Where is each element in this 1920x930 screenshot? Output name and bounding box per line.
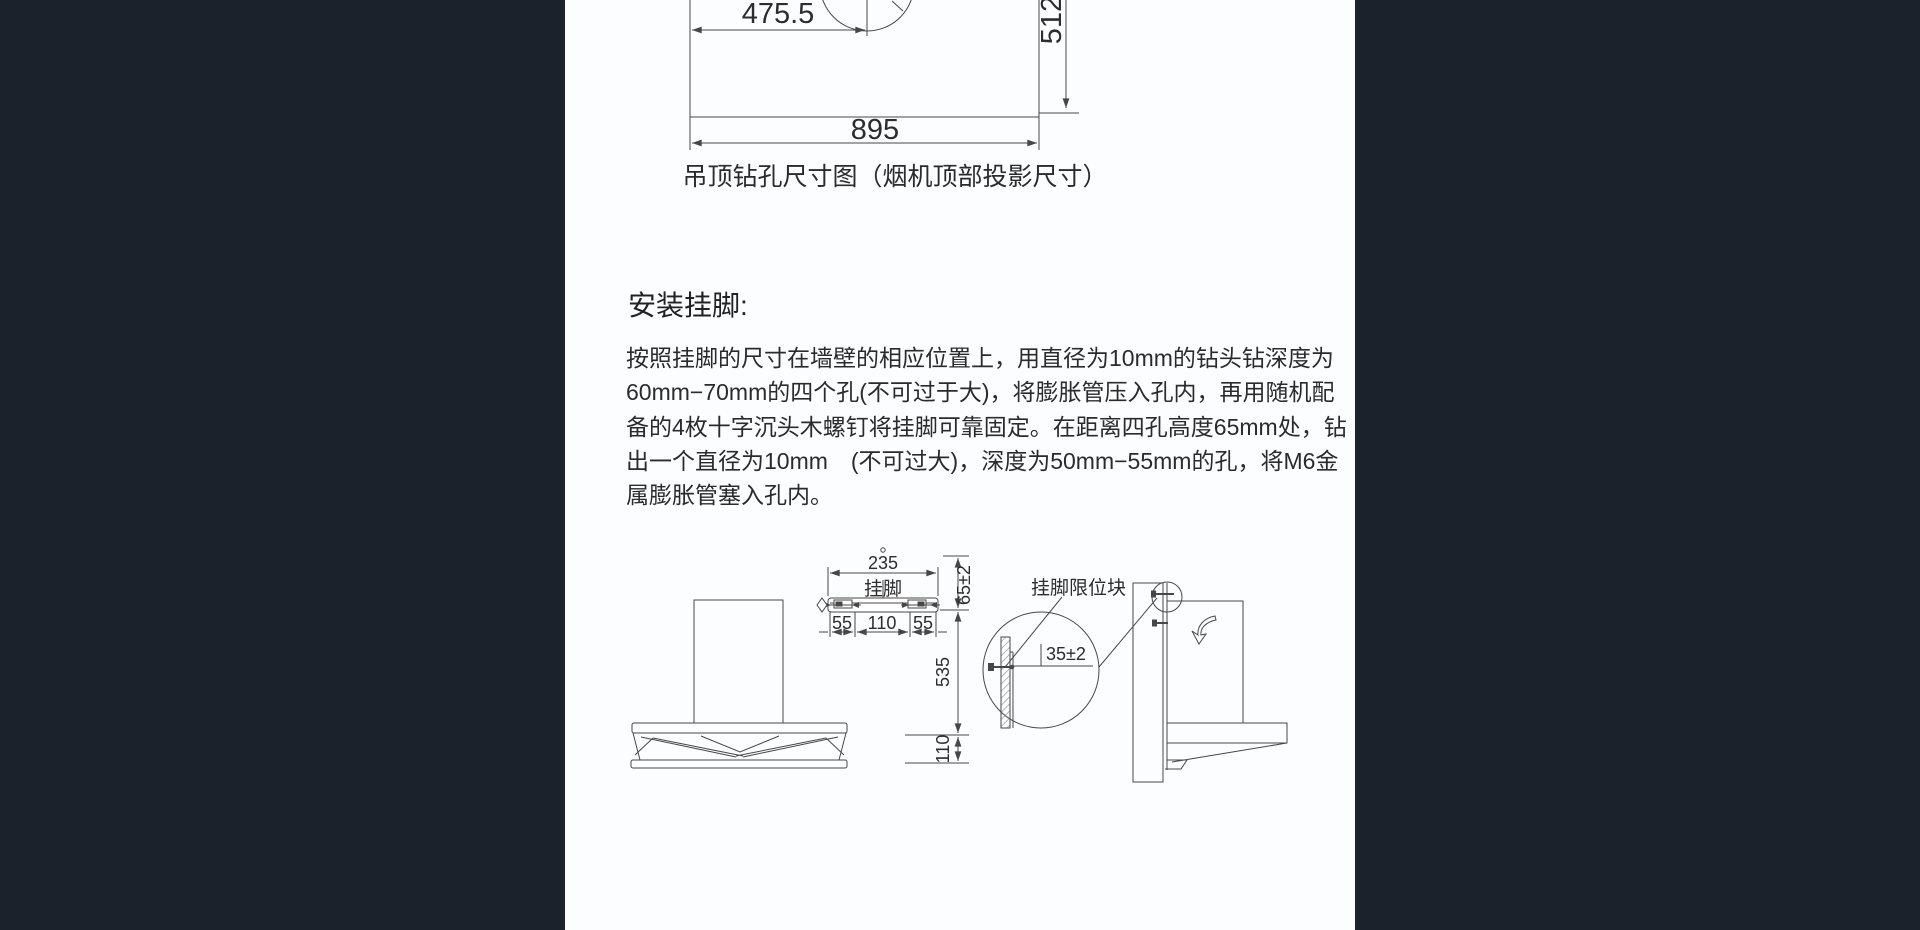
hole-tick (892, 1, 903, 11)
slot-left-inner (836, 602, 843, 607)
chimney-side (1167, 583, 1243, 770)
paragraph-line: 按照挂脚的尺寸在墙壁的相应位置上，用直径为10mm的钻头钻深度为 (626, 341, 1326, 375)
ceiling-drill-diagram: 475.5 895 512 (565, 0, 1355, 160)
vertical-dim-chain: 65±2 535 110 (905, 556, 974, 763)
detail-leader (1099, 598, 1157, 667)
hood-front-view (631, 600, 847, 768)
limit-block-detail: 挂脚限位块 35±2 (983, 577, 1157, 728)
rotate-arrow-icon (1192, 616, 1216, 644)
chimney-front (694, 600, 783, 723)
hood-top-band (632, 723, 847, 733)
wall-side (1133, 583, 1163, 782)
bracket-detail: 235 挂脚 55 110 55 (817, 548, 947, 637)
paragraph-line: 备的4枚十字沉头木螺钉将挂脚可靠固定。在距离四孔高度65mm处，钻 (626, 410, 1326, 444)
dim-label-55R: 55 (913, 613, 933, 633)
section-heading: 安装挂脚: (628, 290, 748, 322)
limit-block-label: 挂脚限位块 (1031, 577, 1126, 599)
manual-page-panel: 475.5 895 512 吊顶钻孔尺寸图（烟机顶部投影尺寸） 安装挂脚: 按照… (565, 0, 1355, 930)
dim-label-110: 110 (868, 613, 897, 633)
dim-label-110b: 110 (933, 735, 953, 764)
screw-tip (1010, 665, 1015, 670)
hood-truss-lines (635, 736, 844, 757)
diamond-symbol (817, 598, 827, 612)
centerline-mark (881, 548, 885, 552)
wall-hatch (1001, 637, 1010, 728)
dim-label-65: 65±2 (954, 565, 974, 605)
paragraph-line: 60mm−70mm的四个孔(不可过于大)，将膨胀管压入孔内，再用随机配 (626, 375, 1326, 409)
wall-screw-top-head (1151, 591, 1156, 598)
dim-label-55L: 55 (832, 613, 852, 633)
bracket-label: 挂脚 (864, 578, 902, 600)
dim-label-512: 512 (1036, 0, 1068, 44)
hood-side-view (1133, 582, 1287, 782)
hood-body-side (1167, 723, 1287, 762)
figure-caption: 吊顶钻孔尺寸图（烟机顶部投影尺寸） (620, 163, 1170, 191)
hood-bottom-band (631, 760, 847, 768)
dim-label-475: 475.5 (742, 0, 815, 30)
paragraph-line: 属膨胀管塞入孔内。 (626, 478, 1326, 512)
screw-head (988, 663, 994, 671)
screenshot-root: { "page": { "background": "#1a222c", "pa… (0, 0, 1920, 930)
bracket-install-diagram: 235 挂脚 55 110 55 65±2 (565, 540, 1355, 800)
instruction-paragraph: 按照挂脚的尺寸在墙壁的相应位置上，用直径为10mm的钻头钻深度为 60mm−70… (626, 341, 1326, 512)
dim-label-35: 35±2 (1046, 644, 1086, 664)
wall-screw-lower-head (1152, 620, 1157, 627)
slot-right-inner (918, 602, 925, 607)
detail-circle (983, 612, 1099, 728)
dim-label-895: 895 (851, 114, 899, 146)
dim-label-235: 235 (868, 553, 898, 573)
paragraph-line: 出一个直径为10mm (不可过大)，深度为50mm−55mm的孔，将M6金 (626, 444, 1326, 478)
hood-sides (633, 733, 846, 760)
dim-label-535: 535 (933, 657, 953, 687)
